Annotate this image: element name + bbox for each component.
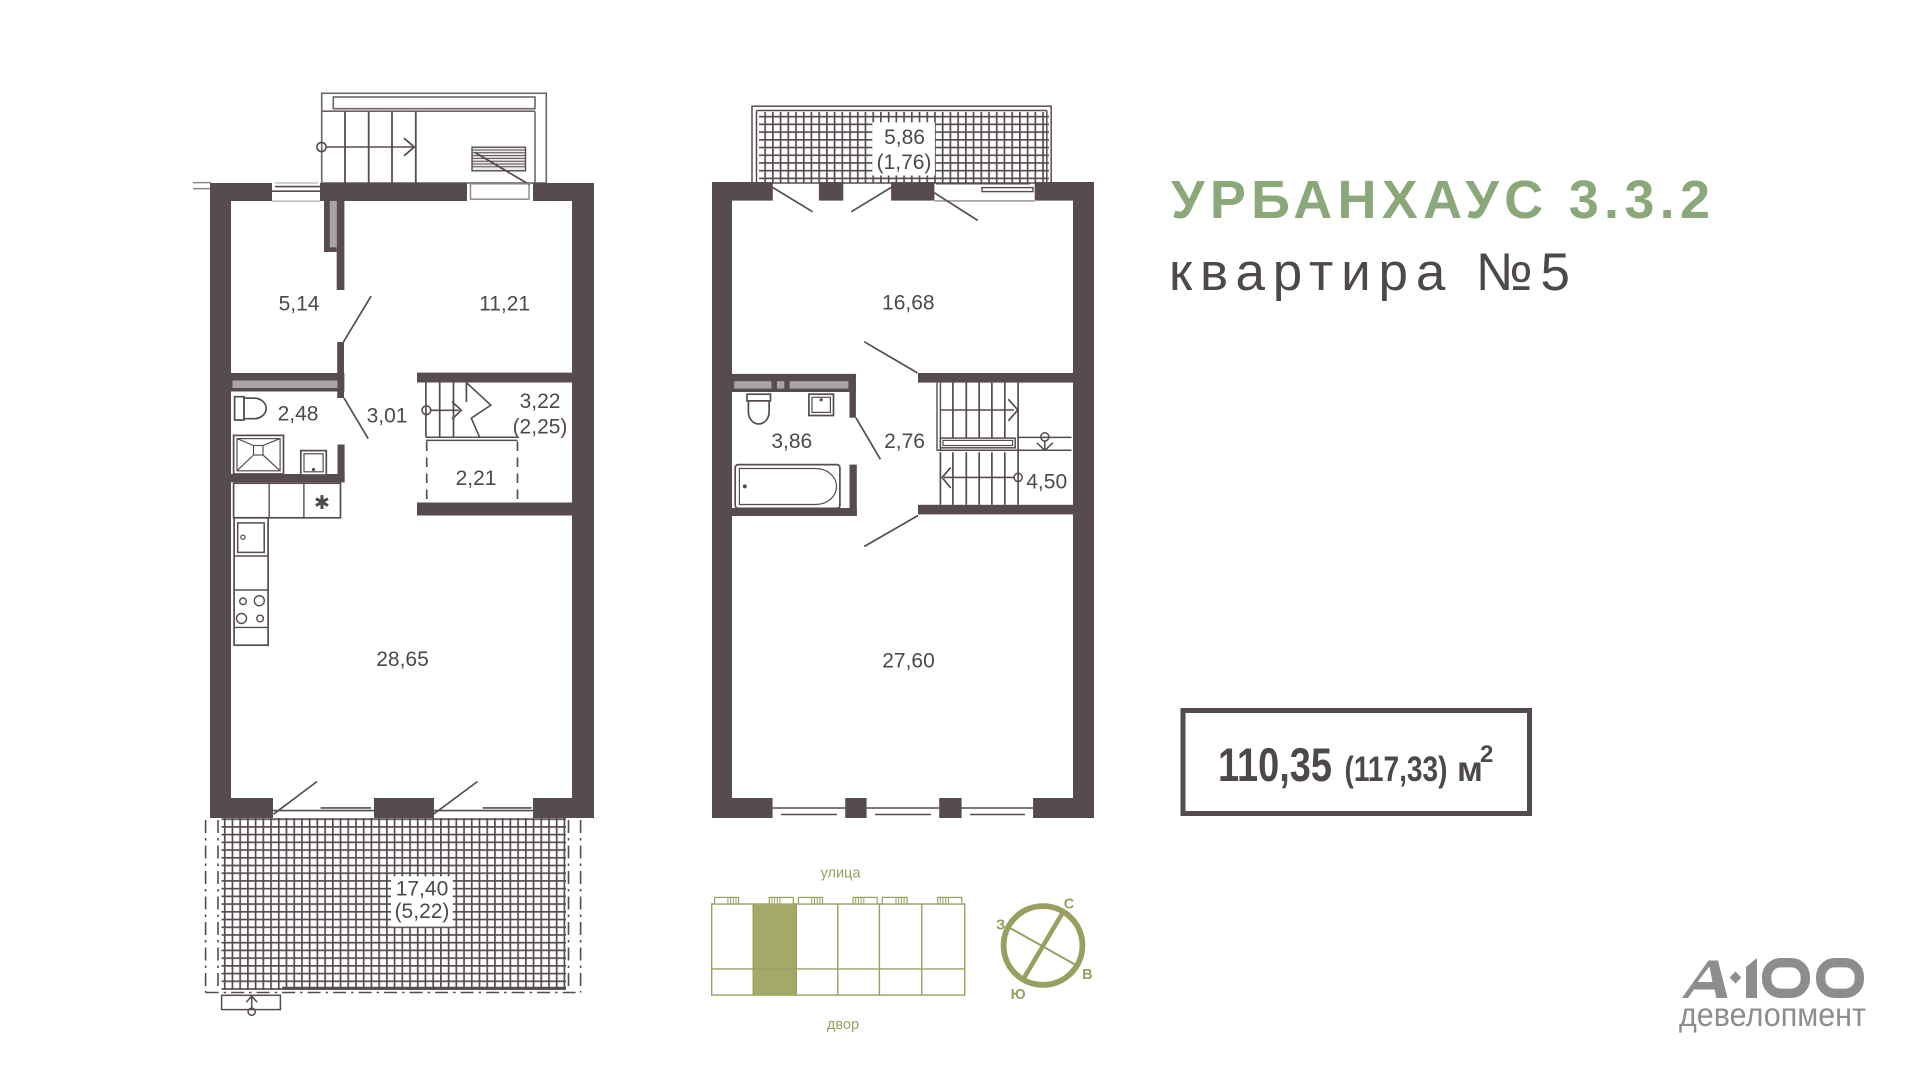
svg-text:2: 2	[1480, 741, 1493, 768]
svg-text:(117,33): (117,33)	[1345, 750, 1448, 789]
svg-text:5,86: 5,86	[884, 126, 925, 149]
svg-text:3,01: 3,01	[367, 405, 408, 428]
svg-text:4,50: 4,50	[1026, 471, 1067, 494]
svg-text:110,35: 110,35	[1218, 738, 1332, 791]
svg-text:(1,76): (1,76)	[877, 151, 932, 174]
svg-text:(5,22): (5,22)	[395, 900, 450, 923]
svg-text:Ю: Ю	[1011, 987, 1026, 1003]
svg-text:11,21: 11,21	[479, 293, 530, 316]
svg-text:17,40: 17,40	[396, 878, 449, 901]
svg-text:З: З	[996, 917, 1005, 933]
svg-text:27,60: 27,60	[882, 650, 935, 673]
svg-text:2,48: 2,48	[278, 403, 319, 426]
svg-text:(2,25): (2,25)	[513, 416, 568, 439]
svg-text:2,21: 2,21	[456, 467, 497, 490]
svg-text:2,76: 2,76	[884, 430, 925, 453]
svg-text:3,22: 3,22	[520, 390, 561, 413]
svg-text:5,14: 5,14	[279, 293, 320, 316]
svg-text:девелопмент: девелопмент	[1679, 996, 1866, 1033]
svg-text:С: С	[1064, 897, 1075, 913]
svg-text:УРБАНХАУС 3.3.2: УРБАНХАУС 3.3.2	[1171, 170, 1710, 230]
svg-text:В: В	[1082, 967, 1092, 983]
svg-text:✱: ✱	[314, 493, 330, 514]
svg-text:3,86: 3,86	[771, 430, 812, 453]
svg-text:улица: улица	[821, 866, 862, 882]
svg-text:двор: двор	[827, 1017, 859, 1033]
svg-text:28,65: 28,65	[376, 648, 429, 671]
svg-text:16,68: 16,68	[882, 292, 935, 315]
